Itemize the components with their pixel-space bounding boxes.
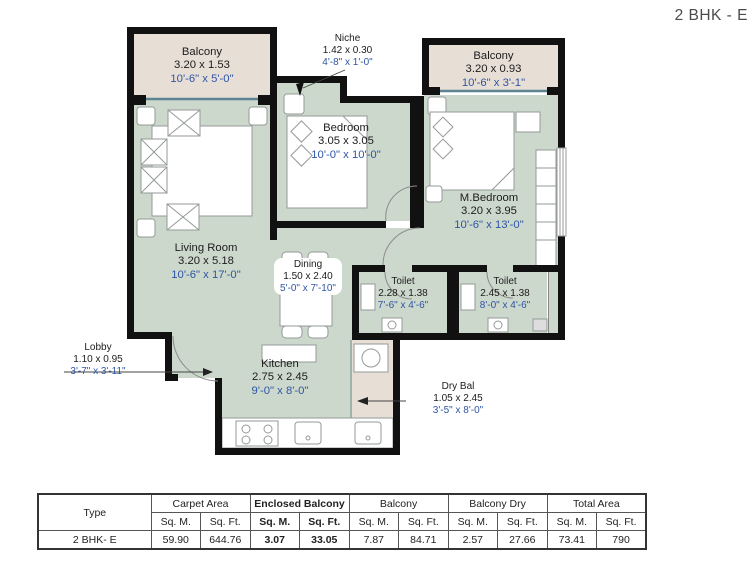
room-dim-metric: 1.05 x 2.45 [408, 393, 508, 405]
chair-icon [282, 326, 302, 338]
kitchen-sink-icon [295, 422, 321, 444]
wall-segment [412, 221, 424, 228]
room-dim-imperial: 7'-6" x 4'-6" [359, 300, 447, 312]
label-master-bedroom: M.Bedroom 3.20 x 3.95 10'-6" x 13'-0" [424, 192, 554, 232]
wall-segment [277, 221, 386, 228]
room-dim-metric: 2.28 x 1.38 [359, 288, 447, 300]
label-balcony-left: Balcony 3.20 x 1.53 10'-6" x 5'-0" [134, 46, 270, 86]
table-header-total-area: Total Area [547, 494, 646, 513]
cell-enclosed-ft: 33.05 [300, 531, 350, 550]
room-dim-metric: 2.45 x 1.38 [461, 288, 549, 300]
room-dim-metric: 3.20 x 5.18 [139, 255, 273, 268]
table-header-balcony-dry: Balcony Dry [448, 494, 547, 513]
room-name: Balcony [134, 46, 270, 59]
room-dim-metric: 1.10 x 0.95 [48, 354, 148, 366]
unit-cell: Sq. Ft. [597, 513, 647, 531]
cell-enclosed-m: 3.07 [250, 531, 300, 550]
wall-segment [352, 265, 385, 272]
wall-segment [165, 332, 172, 381]
label-dining: Dining 1.50 x 2.40 5'-0" x 7'-10" [274, 258, 342, 295]
duct-hatch [533, 319, 547, 331]
wall-segment [215, 378, 222, 455]
room-name: Toilet [461, 276, 549, 288]
master-bedroom-window [557, 148, 566, 236]
room-dim-metric: 3.20 x 3.95 [424, 205, 554, 218]
room-dim-imperial: 10'-0" x 10'-0" [284, 149, 408, 162]
unit-cell: Sq. M. [448, 513, 498, 531]
wall-segment [127, 27, 277, 34]
wall-segment [270, 76, 347, 83]
wall-segment [352, 272, 359, 333]
wall-segment [393, 333, 400, 455]
room-dim-metric: 3.20 x 1.53 [134, 59, 270, 72]
wall-segment [513, 265, 565, 272]
room-dim-imperial: 10'-6" x 5'-0" [134, 73, 270, 86]
label-living-room: Living Room 3.20 x 5.18 10'-6" x 17'-0" [139, 242, 273, 282]
room-dim-metric: 3.20 x 0.93 [429, 63, 558, 76]
room-name: Niche [300, 33, 395, 45]
unit-cell: Sq. M. [151, 513, 201, 531]
room-name: Toilet [359, 276, 447, 288]
cell-type: 2 BHK- E [38, 531, 151, 550]
plant-pot-icon [137, 219, 155, 237]
unit-cell: Sq. Ft. [498, 513, 548, 531]
chair-icon [308, 326, 328, 338]
room-dim-imperial: 3'-7" x 3'-11" [48, 366, 148, 378]
label-kitchen: Kitchen 2.75 x 2.45 9'-0" x 8'-0" [225, 358, 335, 398]
wall-segment [134, 95, 146, 105]
room-dim-imperial: 8'-0" x 4'-6" [461, 300, 549, 312]
wall-segment [447, 272, 459, 333]
plant-pot-icon [249, 107, 267, 125]
label-bedroom: Bedroom 3.05 x 3.05 10'-0" x 10'-0" [284, 122, 408, 162]
cell-balcony-dry-m: 2.57 [448, 531, 498, 550]
table-header-carpet-area: Carpet Area [151, 494, 250, 513]
room-name: Dry Bal [408, 381, 508, 393]
cell-total-ft: 790 [597, 531, 647, 550]
room-dim-metric: 2.75 x 2.45 [225, 371, 335, 384]
table-header-balcony: Balcony [349, 494, 448, 513]
wall-segment [258, 95, 270, 105]
room-dim-imperial: 5'-0" x 7'-10" [276, 283, 340, 295]
label-lobby: Lobby 1.10 x 0.95 3'-7" x 3'-11" [48, 342, 148, 377]
room-dim-imperial: 10'-6" x 17'-0" [139, 269, 273, 282]
wall-segment [270, 76, 277, 240]
room-name: Living Room [139, 242, 273, 255]
room-dim-imperial: 10'-6" x 13'-0" [424, 219, 554, 232]
wall-segment [410, 96, 424, 228]
unit-cell: Sq. Ft. [201, 513, 251, 531]
plant-pot-icon [137, 107, 155, 125]
cell-balcony-ft: 84.71 [399, 531, 449, 550]
table-header-enclosed-balcony: Enclosed Balcony [250, 494, 349, 513]
label-niche: Niche 1.42 x 0.30 4'-8" x 1'-0" [300, 33, 395, 68]
label-dry-balcony: Dry Bal 1.05 x 2.45 3'-5" x 8'-0" [408, 381, 508, 416]
room-dim-imperial: 3'-5" x 8'-0" [408, 405, 508, 417]
room-dim-metric: 1.50 x 2.40 [276, 271, 340, 283]
room-dim-imperial: 9'-0" x 8'-0" [225, 385, 335, 398]
label-toilet-2: Toilet 2.45 x 1.38 8'-0" x 4'-6" [461, 276, 549, 311]
unit-cell: Sq. M. [250, 513, 300, 531]
room-name: M.Bedroom [424, 192, 554, 205]
unit-cell: Sq. Ft. [300, 513, 350, 531]
unit-cell: Sq. M. [349, 513, 399, 531]
room-dim-metric: 3.05 x 3.05 [284, 135, 408, 148]
table-header-type: Type [38, 494, 151, 531]
table-data-row: 2 BHK- E 59.90 644.76 3.07 33.05 7.87 84… [38, 531, 646, 550]
room-name: Lobby [48, 342, 148, 354]
area-table: Type Carpet Area Enclosed Balcony Balcon… [37, 493, 647, 550]
cell-total-m: 73.41 [547, 531, 597, 550]
plant-pot-icon [284, 94, 304, 114]
room-name: Dining [276, 259, 340, 271]
room-dim-imperial: 10'-6" x 3'-1" [429, 77, 558, 90]
cell-carpet-ft: 644.76 [201, 531, 251, 550]
cell-carpet-m: 59.90 [151, 531, 201, 550]
wall-segment [352, 333, 565, 340]
unit-cell: Sq. M. [547, 513, 597, 531]
wall-segment [127, 27, 134, 339]
room-dim-metric: 1.42 x 0.30 [300, 45, 395, 57]
cell-balcony-m: 7.87 [349, 531, 399, 550]
room-name: Kitchen [225, 358, 335, 371]
unit-cell: Sq. Ft. [399, 513, 449, 531]
table-group-header-row: Type Carpet Area Enclosed Balcony Balcon… [38, 494, 646, 513]
wall-segment [422, 38, 565, 45]
room-dim-imperial: 4'-8" x 1'-0" [300, 57, 395, 69]
label-toilet-1: Toilet 2.28 x 1.38 7'-6" x 4'-6" [359, 276, 447, 311]
bedside-table-icon [516, 112, 540, 132]
wall-segment [422, 38, 429, 95]
wall-segment [412, 265, 447, 272]
wall-segment [165, 374, 178, 381]
utility-sink-icon [355, 422, 381, 444]
shaft-floor [549, 272, 558, 333]
label-balcony-right: Balcony 3.20 x 0.93 10'-6" x 3'-1" [429, 50, 558, 90]
room-name: Bedroom [284, 122, 408, 135]
room-name: Balcony [429, 50, 558, 63]
wall-segment [215, 448, 400, 455]
cell-balcony-dry-ft: 27.66 [498, 531, 548, 550]
floor-plan-page: 2 BHK - E [0, 0, 756, 561]
